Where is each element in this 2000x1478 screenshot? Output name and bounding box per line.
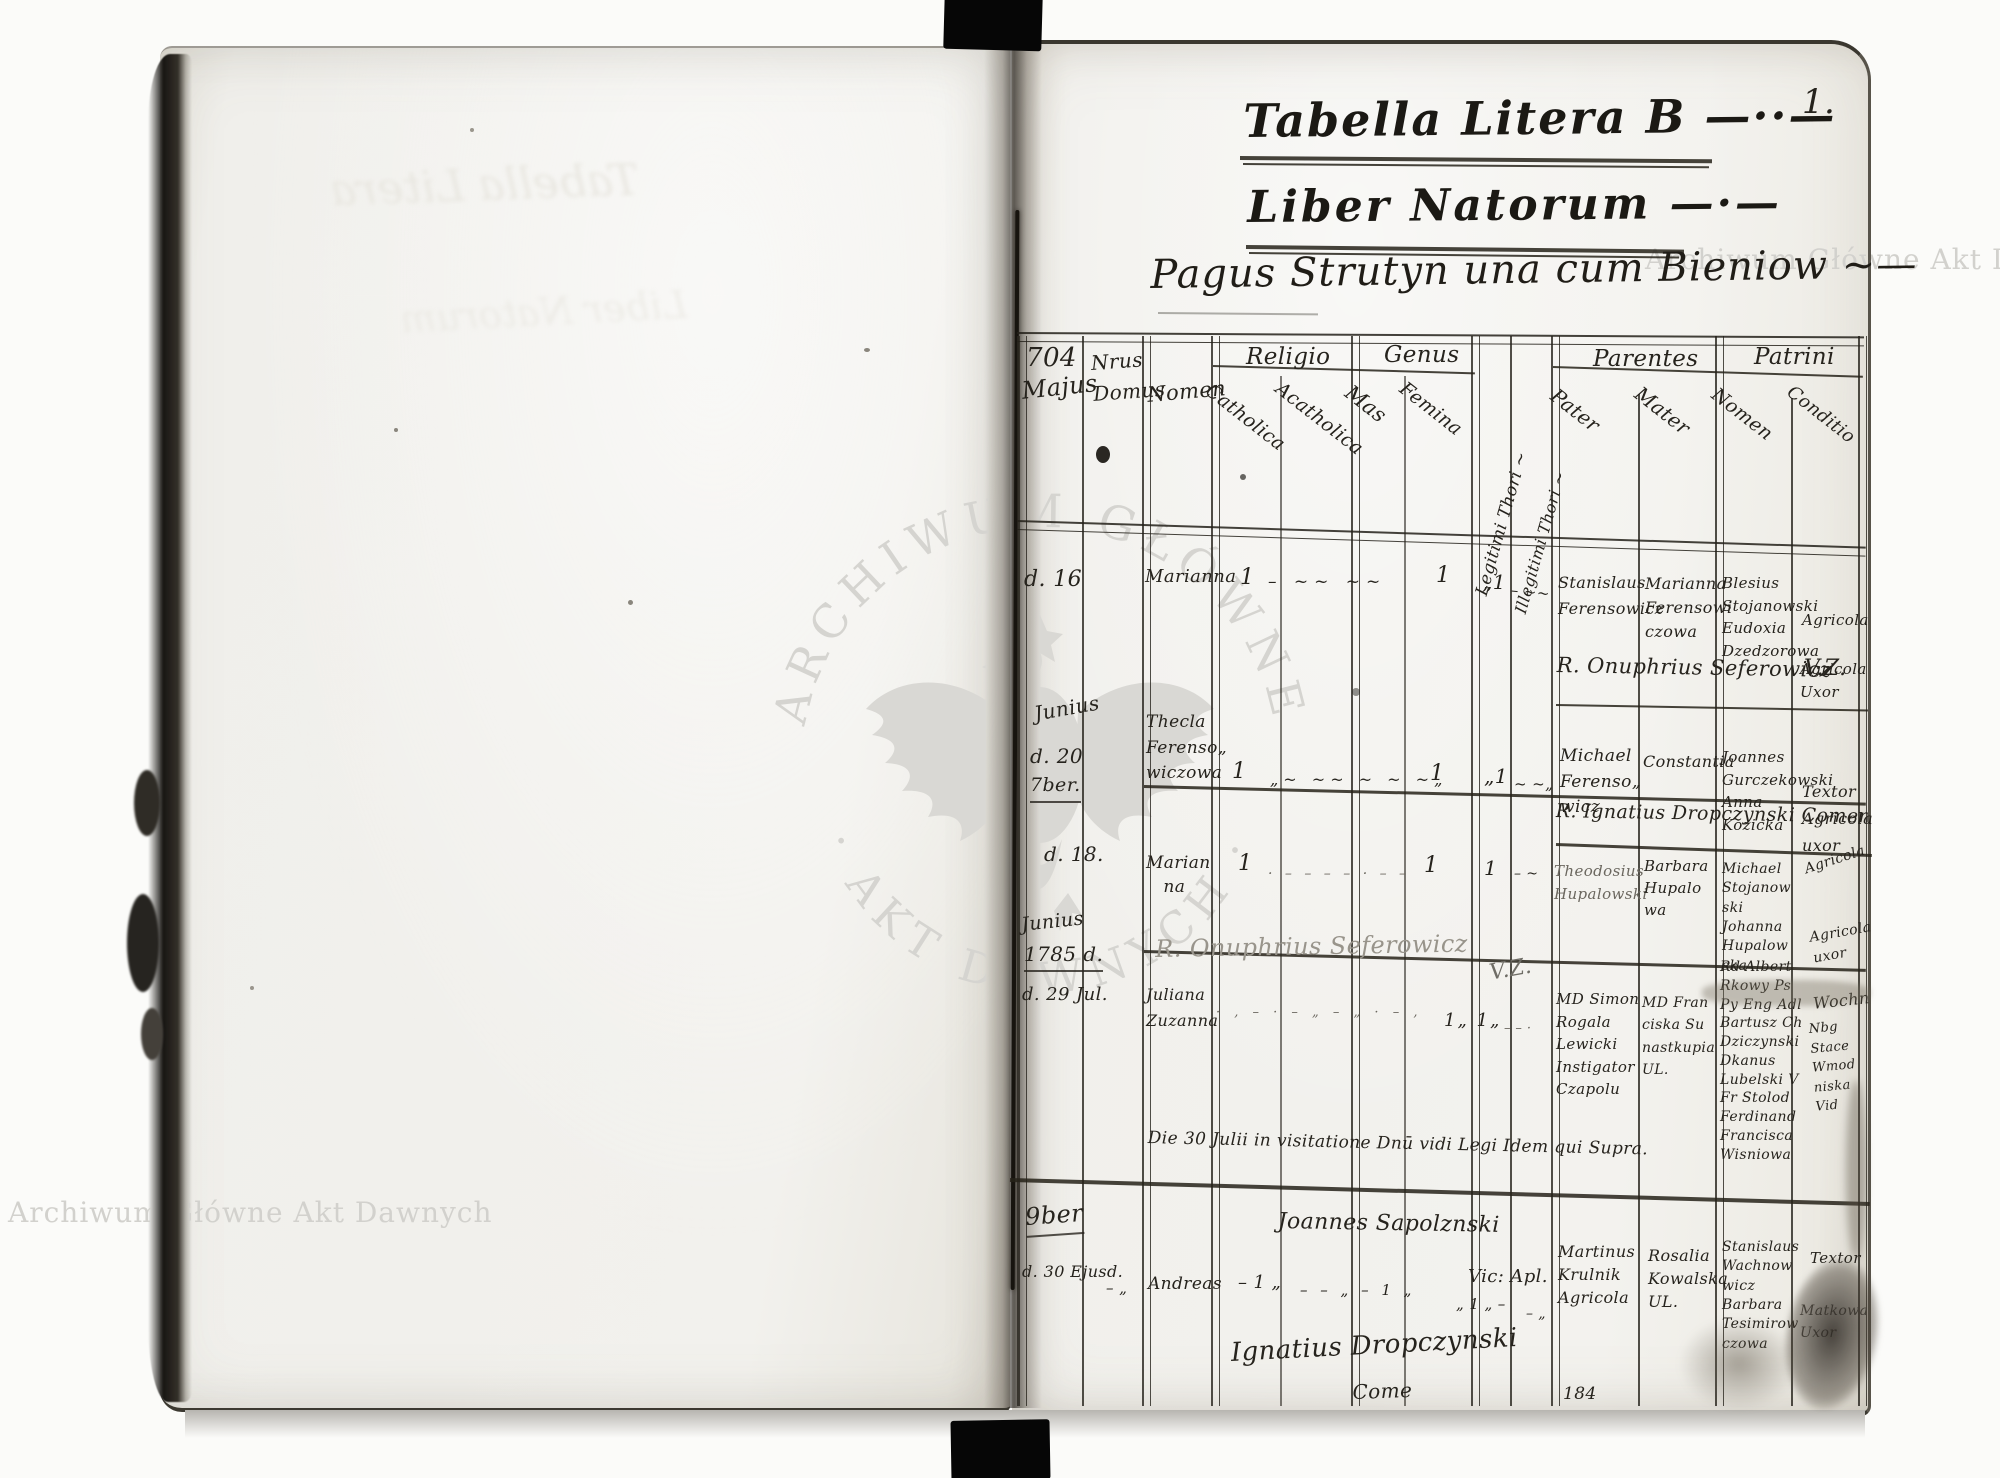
record-mater: MD Fran ciska Su nastkupia UL.: [1642, 992, 1715, 1082]
record-catholica: 1: [1232, 756, 1246, 788]
ink-speck: [1240, 474, 1246, 480]
table-rule: [1471, 336, 1480, 1406]
header-parentes: Parentes: [1593, 343, 1698, 376]
torn-edge-bump: [127, 894, 159, 992]
record-pater: Theodosius Hupalowski: [1554, 860, 1648, 905]
record-ditto-marks: · , – · – „ – „ · – ,: [1216, 1004, 1422, 1023]
record-legitimi: „1: [1484, 762, 1508, 791]
smudge: [1702, 980, 1870, 1006]
record-ditto-marks: · – – – – · – –: [1268, 864, 1410, 884]
archival-scan: Tabella Litera Liber Natorum ARCHIWUM GŁ…: [0, 0, 2000, 1478]
header-religio: Religio: [1246, 341, 1330, 374]
record-legitimi: 1: [1484, 854, 1497, 883]
record-ditto-marks: – „: [1106, 1278, 1127, 1300]
record-illegitimi: – ~~: [1510, 580, 1551, 606]
archive-watermark-text: Archiwum Główne Akt Dawnych: [8, 1196, 493, 1229]
margin-date: d. 20: [1030, 742, 1083, 771]
record-femina: 1: [1424, 850, 1438, 882]
ink-speck: [1352, 688, 1360, 696]
clergy-note: Vic: Apl.: [1468, 1264, 1548, 1290]
clergy-note: V.Z.: [1804, 653, 1847, 685]
record-catholica: 1: [1238, 848, 1252, 880]
record-mater: Constantia: [1643, 750, 1735, 773]
record-ditto-marks: – – „ – 1 „: [1300, 1280, 1415, 1302]
record-nomen: Thecla Ferenso„ wiczowa: [1146, 710, 1227, 787]
film-clip-bottom: [950, 1419, 1050, 1478]
clergy-note: Joannes Sapolznski: [1277, 1206, 1500, 1242]
ink-speck: [1096, 446, 1110, 463]
clergy-note: R. Onuphrius Seferowicz: [1155, 927, 1468, 967]
record-catholica: 1: [1240, 562, 1254, 594]
edge-stain: [1846, 1080, 1866, 1260]
record-legitimi: „1: [1482, 568, 1506, 597]
margin-month: 9ber: [1024, 1196, 1084, 1238]
film-clip-top: [943, 0, 1043, 51]
record-illegitimi: – ~: [1514, 864, 1538, 884]
speck: [864, 348, 870, 352]
margin-date: d. 16: [1024, 564, 1082, 596]
clergy-note: R. Ignatius Dropczynski Coment Ytoczow: [1556, 798, 1868, 831]
table-rule: [1017, 336, 1027, 1406]
speck: [628, 600, 633, 605]
record-illegitimi: – – ·: [1504, 1020, 1531, 1039]
record-pater: MD Simon Rogala Lewicki Instigator Czapo…: [1556, 988, 1639, 1101]
speck: [470, 128, 474, 132]
record-conditio: Agricola: [1802, 610, 1869, 632]
clergy-note: R. Onuphrius Seferowicz: [1556, 650, 1831, 685]
table-rule: [1082, 336, 1084, 1406]
margin-date: d. 29 Jul.: [1022, 982, 1108, 1008]
margin-month: 7ber.: [1030, 772, 1081, 803]
table-rule: [1404, 376, 1406, 1406]
bleed-through-text: Tabella Litera: [329, 155, 640, 217]
record-ditto-marks: – ~~ ~~: [1268, 570, 1386, 595]
page-title: Tabella Litera B —··—: [1243, 82, 1837, 155]
priest-signature: Come: [1352, 1376, 1413, 1407]
table-rule: [1211, 336, 1220, 1406]
record-ditto-marks: „~ ~~ ~ ~ ~„: [1270, 768, 1447, 791]
record-mater: Rosalia Kowalska UL.: [1648, 1244, 1728, 1314]
record-pater: Martinus Krulnik Agricola: [1558, 1240, 1635, 1310]
ink-stain: [1680, 1318, 1798, 1410]
register-title: Liber Natorum —·—: [1247, 171, 1782, 239]
speck: [394, 428, 398, 432]
record-femina: 1: [1436, 560, 1450, 592]
header-genus: Genus: [1384, 339, 1459, 372]
record-mater: Marianna Ferensowi czowa: [1645, 572, 1732, 644]
record-illegitimi: ~ ~„: [1514, 774, 1553, 796]
record-legitimi: 1„ 1„: [1444, 1008, 1501, 1034]
torn-edge-bump: [134, 770, 160, 836]
record-mater: Barbara Hupalo wa: [1644, 856, 1709, 921]
speck: [250, 986, 254, 990]
margin-year: 1785 d.: [1024, 940, 1103, 972]
margin-date: d. 18.: [1044, 840, 1104, 869]
record-nomen: Marian na: [1146, 852, 1211, 900]
record-nomen: Juliana Zuzanna: [1146, 982, 1218, 1033]
record-nomen: Andreas: [1148, 1272, 1222, 1297]
header-patrini: Patrini: [1754, 341, 1835, 374]
record-nomen: Marianna: [1145, 564, 1236, 590]
record-ditto-marks: „ 1 „ –: [1456, 1294, 1506, 1316]
record-catholica: – 1 „: [1238, 1270, 1281, 1296]
record-ditto-marks: – „: [1526, 1304, 1546, 1324]
torn-edge-bump: [141, 1008, 163, 1060]
village-title: Pagus Strutyn una cum Bieniow ~—: [1150, 235, 1918, 304]
folio-note: 184: [1563, 1382, 1597, 1407]
record-femina: 1: [1430, 758, 1444, 790]
